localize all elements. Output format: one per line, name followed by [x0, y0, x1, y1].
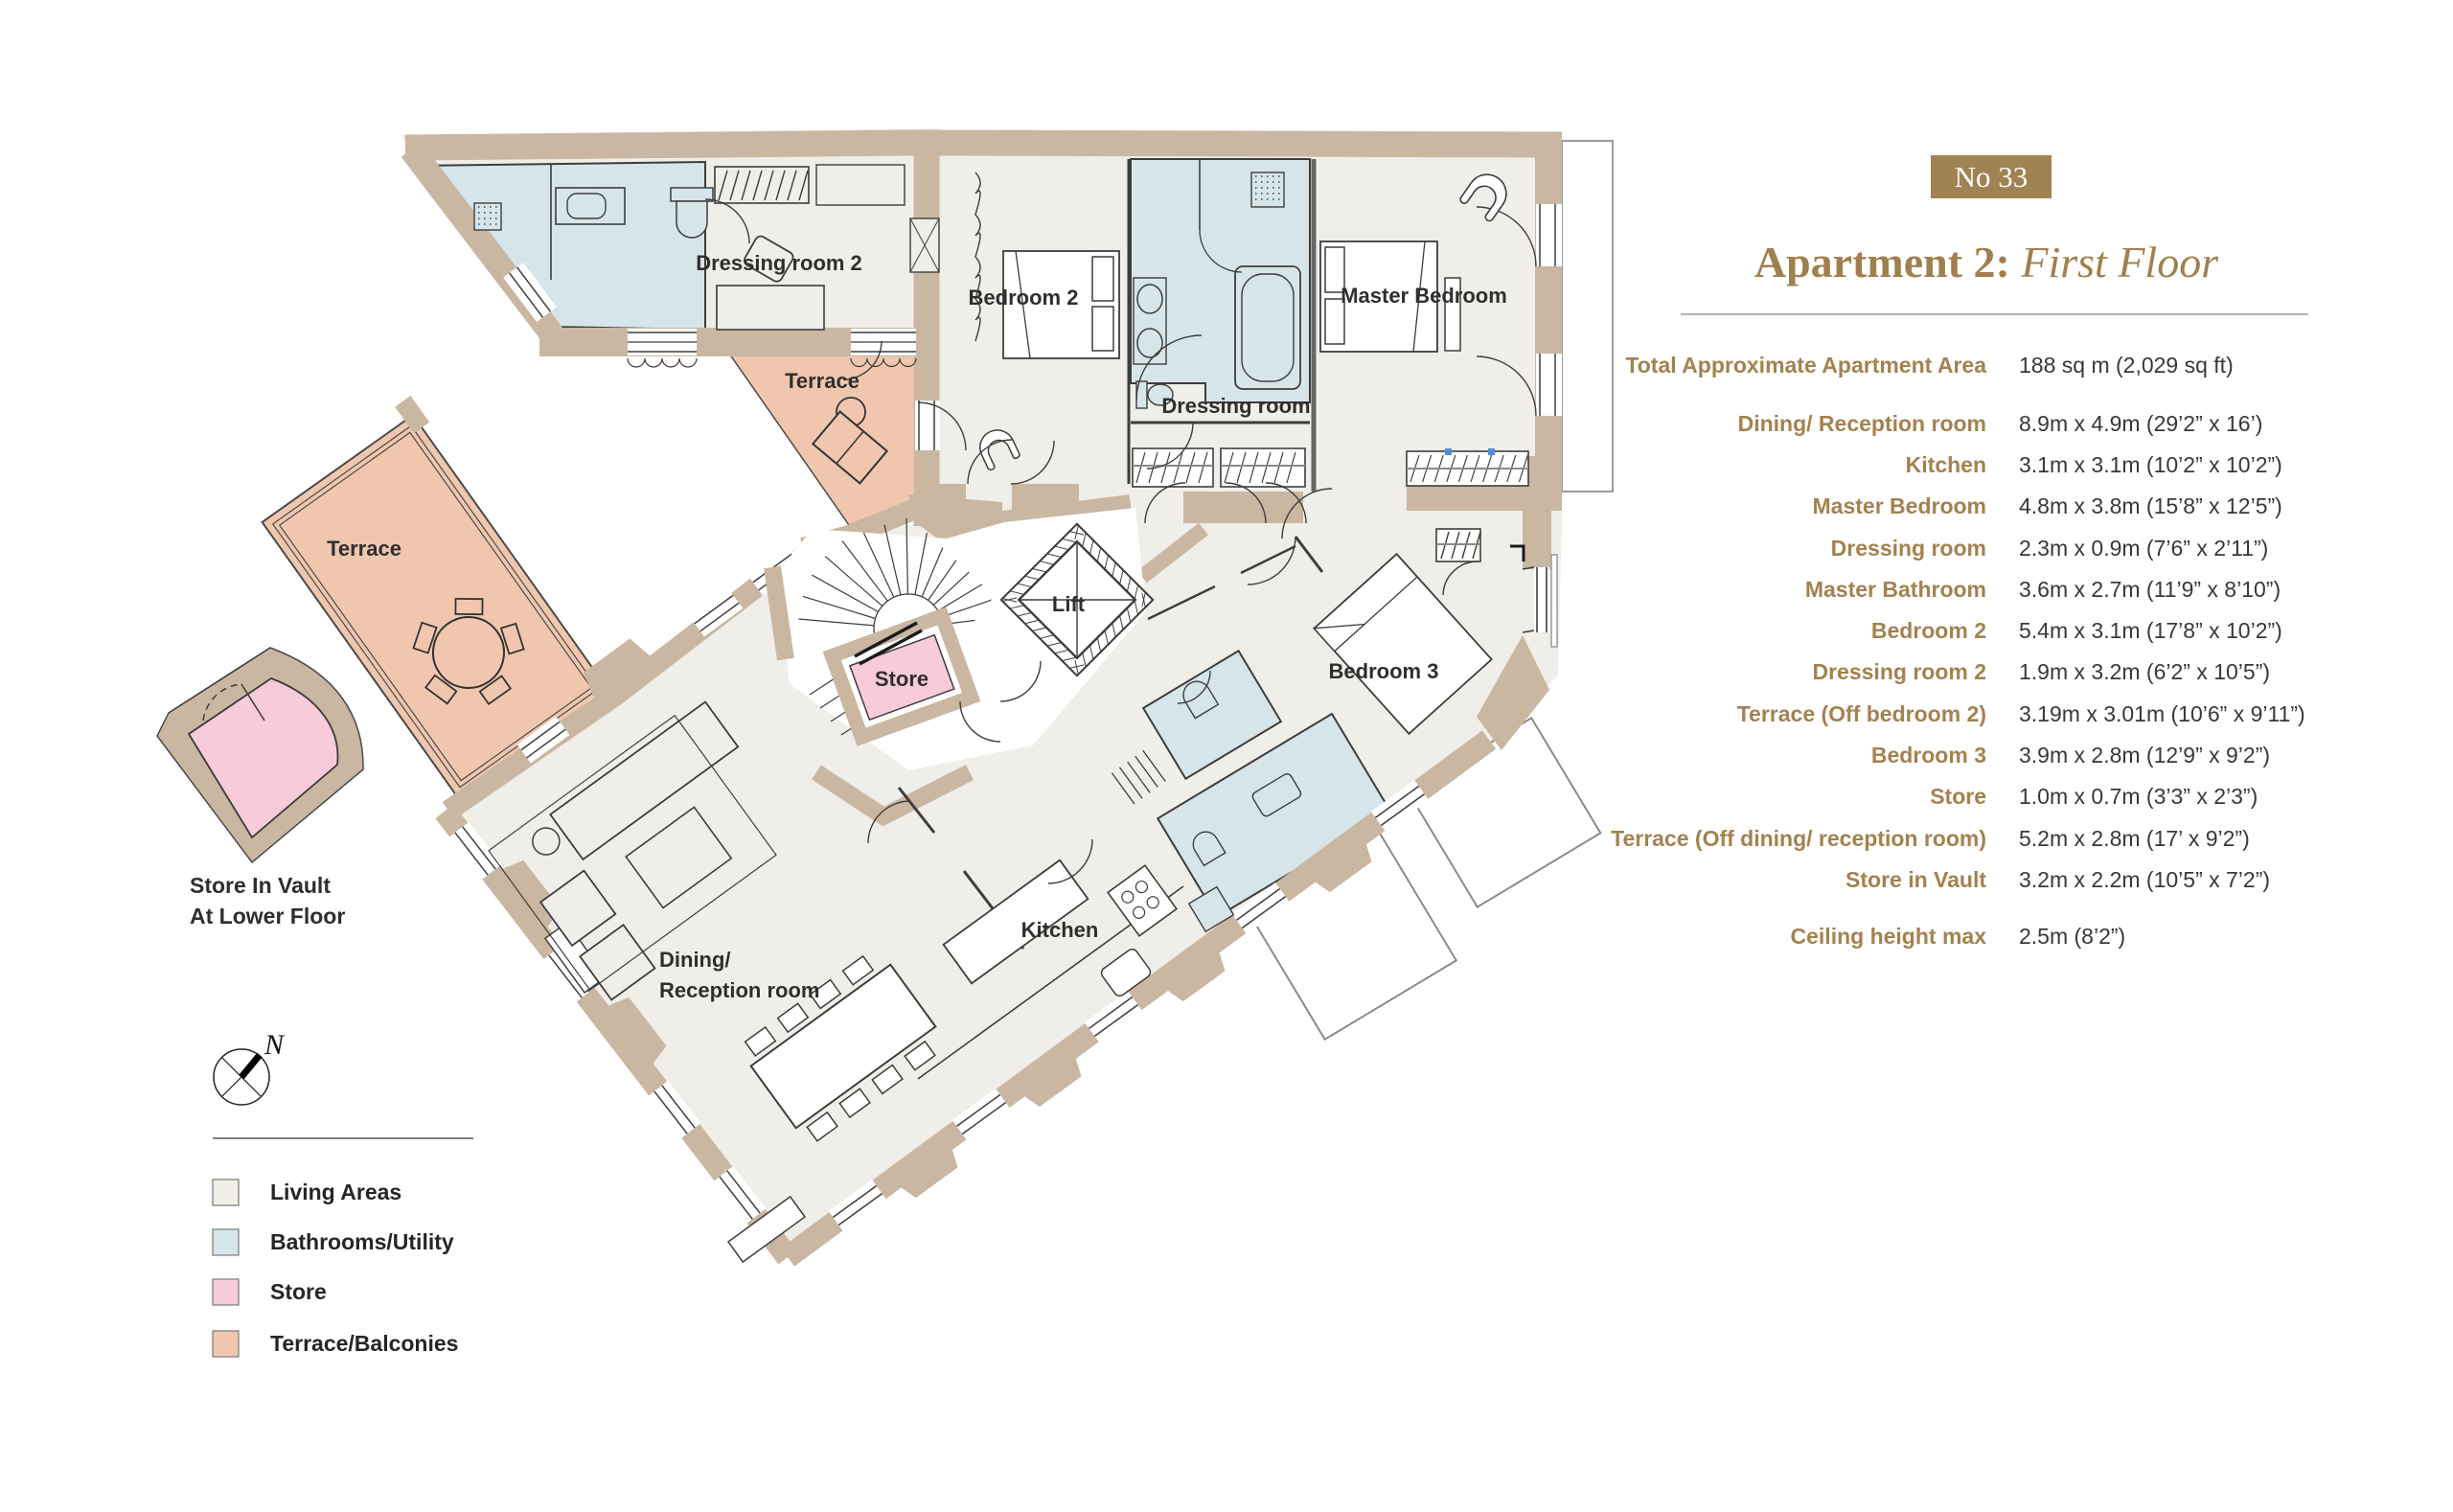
svg-text:Bathrooms/Utility: Bathrooms/Utility [270, 1229, 454, 1254]
svg-text:Bedroom 2: Bedroom 2 [969, 286, 1079, 309]
svg-text:Store: Store [875, 667, 928, 691]
svg-text:Terrace: Terrace [785, 369, 860, 393]
svg-text:Dressing room: Dressing room [1161, 394, 1310, 418]
svg-text:Total Approximate Apartment Ar: Total Approximate Apartment Area [1625, 353, 1986, 378]
svg-text:Terrace/Balconies: Terrace/Balconies [270, 1331, 458, 1356]
svg-text:Terrace (Off bedroom 2): Terrace (Off bedroom 2) [1737, 701, 1986, 726]
svg-text:Dressing room 2: Dressing room 2 [1813, 659, 1987, 684]
svg-text:Lift: Lift [1052, 592, 1086, 616]
svg-text:Store in Vault: Store in Vault [1845, 867, 1986, 892]
svg-text:3.1m x 3.1m (10’2” x 10’2”): 3.1m x 3.1m (10’2” x 10’2”) [2019, 452, 2282, 477]
svg-text:Bedroom 2: Bedroom 2 [1871, 618, 1986, 643]
svg-text:Master Bedroom: Master Bedroom [1813, 493, 1986, 518]
svg-text:Store In Vault: Store In Vault [190, 873, 331, 898]
svg-text:Terrace: Terrace [327, 537, 401, 561]
svg-text:Dressing room: Dressing room [1831, 536, 1986, 561]
svg-text:4.8m x 3.8m (15’8” x 12’5”): 4.8m x 3.8m (15’8” x 12’5”) [2019, 493, 2282, 518]
svg-text:3.6m x 2.7m (11’9” x 8’10”): 3.6m x 2.7m (11’9” x 8’10”) [2019, 577, 2281, 602]
svg-text:Bedroom 3: Bedroom 3 [1871, 743, 1986, 767]
svg-text:1.0m x 0.7m (3’3” x 2’3”): 1.0m x 0.7m (3’3” x 2’3”) [2019, 784, 2258, 809]
svg-text:3.2m x 2.2m (10’5” x 7’2”): 3.2m x 2.2m (10’5” x 7’2”) [2019, 867, 2270, 892]
svg-text:5.4m x 3.1m (17’8” x 10’2”): 5.4m x 3.1m (17’8” x 10’2”) [2019, 618, 2282, 643]
svg-text:1.9m x 3.2m (6’2” x 10’5”): 1.9m x 3.2m (6’2” x 10’5”) [2019, 659, 2270, 684]
svg-text:Living Areas: Living Areas [270, 1180, 401, 1204]
svg-text:N: N [264, 1029, 286, 1061]
svg-text:Master Bathroom: Master Bathroom [1805, 577, 1986, 602]
svg-text:Dining/ Reception room: Dining/ Reception room [1738, 411, 1986, 436]
svg-text:2.3m x 0.9m (7’6” x 2’11”): 2.3m x 0.9m (7’6” x 2’11”) [2019, 536, 2268, 561]
svg-text:2.5m (8’2”): 2.5m (8’2”) [2019, 924, 2125, 949]
svg-text:188 sq m (2,029 sq ft): 188 sq m (2,029 sq ft) [2019, 353, 2234, 378]
svg-text:Terrace (Off dining/ reception: Terrace (Off dining/ reception room) [1611, 826, 1986, 851]
svg-text:Master Bedroom: Master Bedroom [1341, 284, 1507, 308]
svg-text:Store: Store [270, 1279, 327, 1304]
svg-text:Store: Store [1930, 784, 1986, 809]
svg-text:Reception room: Reception room [659, 978, 819, 1002]
svg-text:Kitchen: Kitchen [1021, 918, 1099, 942]
svg-text:Dressing room 2: Dressing room 2 [696, 251, 862, 275]
svg-text:Ceiling height max: Ceiling height max [1791, 924, 1987, 949]
svg-text:At Lower Floor: At Lower Floor [190, 904, 345, 928]
svg-text:No 33: No 33 [1955, 160, 2029, 194]
svg-text:Bedroom 3: Bedroom 3 [1329, 659, 1439, 683]
svg-text:8.9m x 4.9m (29’2” x 16’): 8.9m x 4.9m (29’2” x 16’) [2019, 411, 2262, 436]
svg-text:Apartment 2: First Floor: Apartment 2: First Floor [1754, 238, 2219, 286]
svg-text:Dining/: Dining/ [659, 948, 731, 972]
svg-text:Kitchen: Kitchen [1906, 452, 1986, 477]
svg-text:3.19m x 3.01m (10’6” x 9’11”): 3.19m x 3.01m (10’6” x 9’11”) [2019, 701, 2305, 726]
svg-text:3.9m x 2.8m (12’9” x 9’2”): 3.9m x 2.8m (12’9” x 9’2”) [2019, 743, 2270, 767]
svg-text:5.2m x 2.8m (17’ x 9’2”): 5.2m x 2.8m (17’ x 9’2”) [2019, 826, 2250, 851]
